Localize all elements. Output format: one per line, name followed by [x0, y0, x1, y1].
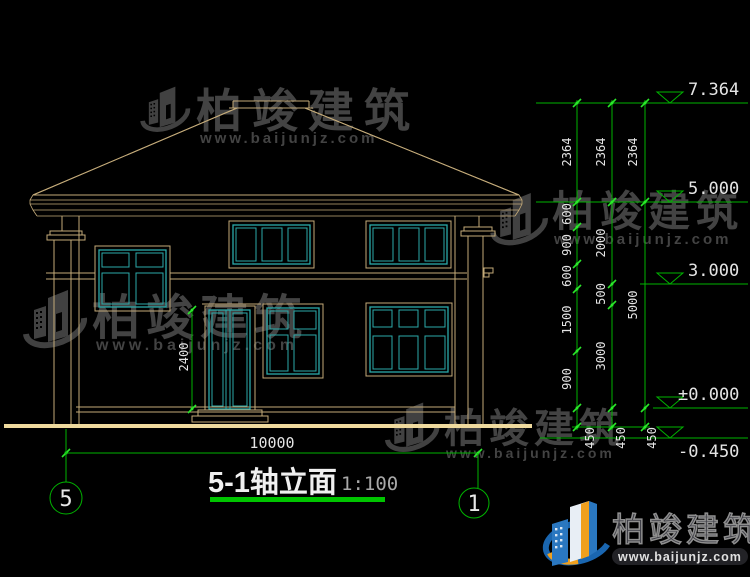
dim-label: 5000 — [626, 291, 640, 320]
level-value: -0.450 — [678, 442, 739, 462]
hip-line-left — [33, 108, 237, 195]
title-text: 5-1轴立面 — [208, 465, 337, 499]
level-value: 7.364 — [688, 80, 739, 100]
axis-bubble-left: 5 — [50, 429, 82, 514]
dim-chain-3-labels: 2364 5000 450 — [626, 138, 659, 449]
level-value: 5.000 — [688, 179, 739, 199]
dim-label: 2364 — [626, 138, 640, 167]
ground-line — [4, 424, 532, 428]
window-2f-left — [229, 221, 314, 268]
window-1f-right — [366, 303, 452, 376]
level-value: ±0.000 — [678, 385, 739, 405]
level-markers: 7.364 5.000 3.000 ±0.000 -0.450 — [657, 80, 739, 462]
dim-chain-1-labels: 2364 600 900 600 1500 900 450 — [560, 138, 597, 449]
column-corbel — [484, 268, 493, 273]
axis-number: 1 — [467, 492, 480, 517]
dim-label: 2364 — [560, 138, 574, 167]
level-value: 3.000 — [688, 261, 739, 281]
dim-chain-2-labels: 2364 2000 500 3000 450 — [594, 138, 628, 449]
dim-label: 450 — [645, 427, 659, 449]
watermark-url: www.baijunjz.com — [199, 130, 377, 147]
dim-label: 900 — [560, 368, 574, 390]
dim-label: 2400 — [177, 343, 191, 372]
axis-bubble-right: 1 — [459, 453, 489, 518]
dim-label: 10000 — [249, 434, 294, 452]
footer-brand: 柏竣建筑 — [612, 511, 750, 548]
footer-url: www.baijunjz.com — [617, 550, 742, 564]
watermark-url: www.baijunjz.com — [553, 231, 731, 248]
footer-logo: 柏竣建筑 www.baijunjz.com — [541, 501, 750, 569]
floor-band — [46, 273, 467, 279]
dim-label: 500 — [594, 283, 608, 305]
eave-fascia — [30, 195, 522, 216]
watermark-logo-icon — [26, 290, 84, 345]
dim-label: 1500 — [560, 306, 574, 335]
watermark-left: 柏竣建筑 www.baijunjz.com — [26, 290, 308, 354]
dim-label: 450 — [614, 427, 628, 449]
level-marker-ground: -0.450 — [657, 427, 739, 462]
dim-label: 600 — [560, 203, 574, 225]
dim-label: 2364 — [594, 138, 608, 167]
dim-label: 600 — [560, 265, 574, 287]
elevation-drawing: 柏竣建筑 www.baijunjz.com 柏竣建筑 www.baijunjz.… — [0, 0, 750, 577]
watermark-logo-icon — [143, 87, 188, 130]
level-marker-floor1: ±0.000 — [657, 385, 739, 408]
dim-label: 900 — [560, 234, 574, 256]
level-marker-ridge: 7.364 — [657, 80, 739, 103]
column-corbel — [484, 273, 489, 277]
drawing-title: 5-1轴立面 1:100 — [208, 465, 398, 502]
title-scale: 1:100 — [341, 473, 398, 495]
dim-label: 450 — [583, 427, 597, 449]
right-column — [461, 216, 495, 424]
title-underline — [210, 497, 385, 502]
watermark-logo-icon — [493, 193, 545, 243]
window-2f-right — [366, 221, 451, 268]
level-marker-floor2: 3.000 — [657, 261, 739, 284]
cad-elevation-screenshot: 柏竣建筑 www.baijunjz.com 柏竣建筑 www.baijunjz.… — [0, 0, 750, 577]
dim-label: 3000 — [594, 342, 608, 371]
axis-number: 5 — [59, 487, 72, 512]
dim-label: 2000 — [594, 229, 608, 258]
